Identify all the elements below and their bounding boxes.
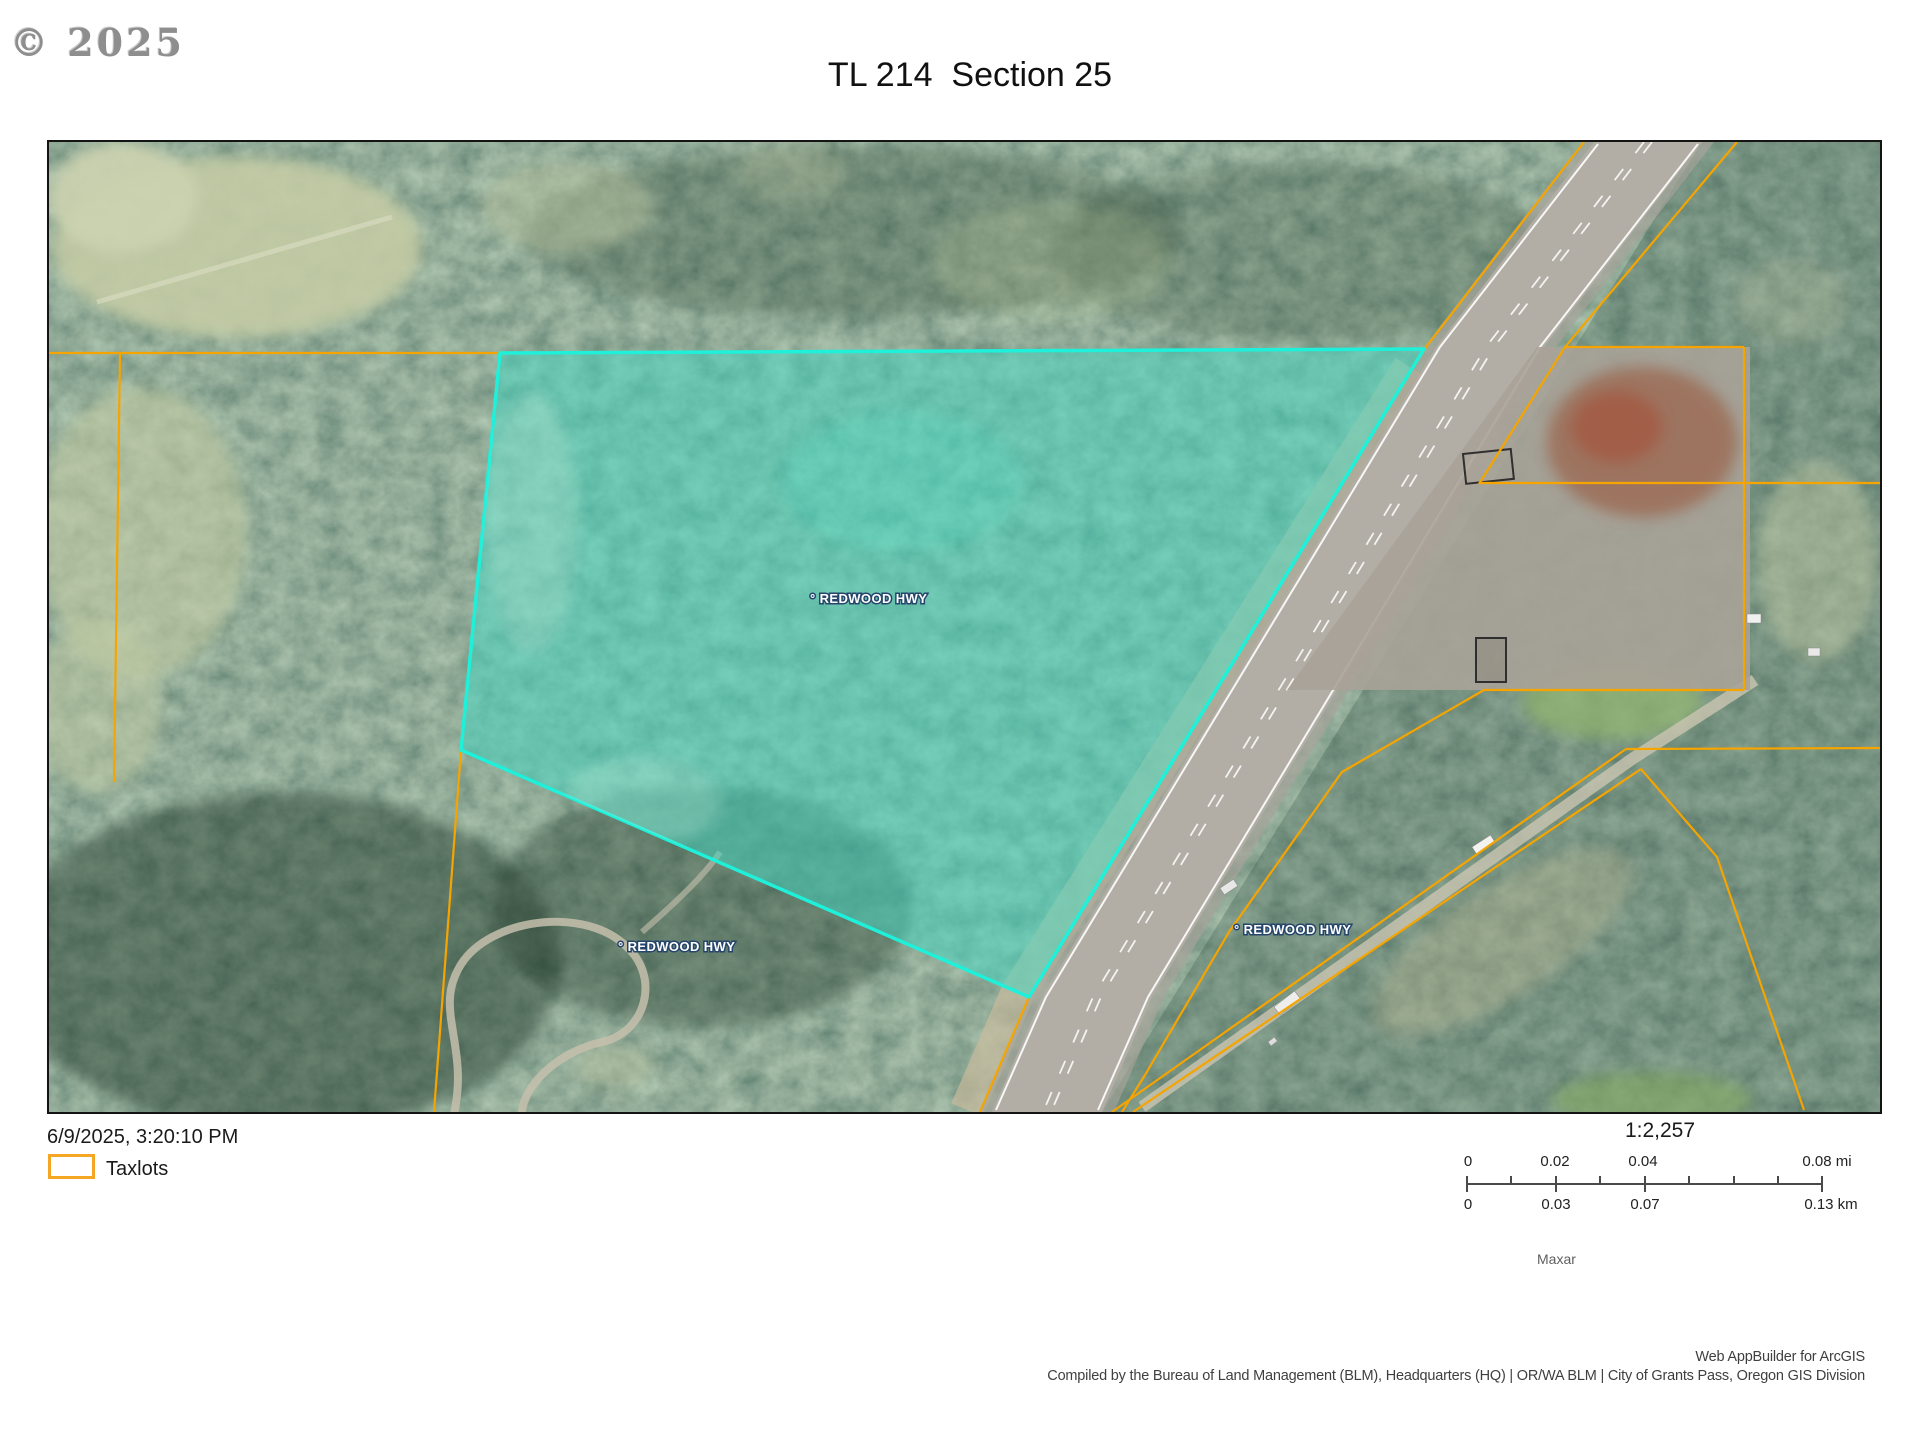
scalebar-tick bbox=[1644, 1176, 1646, 1184]
scalebar-tick bbox=[1466, 1176, 1468, 1184]
scalebar-km-1: 0.03 bbox=[1541, 1196, 1570, 1213]
building-foundation-2 bbox=[1476, 638, 1506, 682]
scalebar-km-2: 0.07 bbox=[1630, 1196, 1659, 1213]
scalebar-tick bbox=[1555, 1176, 1557, 1184]
scalebar-tick bbox=[1599, 1176, 1601, 1184]
legend-taxlots-label: Taxlots bbox=[106, 1158, 168, 1181]
scalebar-tick bbox=[1777, 1176, 1779, 1184]
scalebar-mi-1: 0.02 bbox=[1540, 1153, 1569, 1170]
scalebar-tick bbox=[1644, 1184, 1646, 1192]
scalebar-tick bbox=[1733, 1176, 1735, 1184]
map-label-redwood-hwy-3: ° REDWOOD HWY bbox=[1234, 922, 1351, 937]
scalebar-tick bbox=[1555, 1184, 1557, 1192]
legend-taxlots-swatch bbox=[48, 1154, 95, 1179]
scalebar-mi-3: 0.08 mi bbox=[1802, 1153, 1851, 1170]
scalebar-tick bbox=[1688, 1176, 1690, 1184]
scalebar-mi-0: 0 bbox=[1464, 1153, 1472, 1170]
attribution-line2: Compiled by the Bureau of Land Managemen… bbox=[1047, 1367, 1865, 1386]
aerial-imagery: ° REDWOOD HWY ° REDWOOD HWY ° REDWOOD HW… bbox=[49, 142, 1880, 1112]
map-label-redwood-hwy-1: ° REDWOOD HWY bbox=[810, 591, 927, 606]
scalebar-tick bbox=[1821, 1184, 1823, 1192]
map-canvas[interactable]: ° REDWOOD HWY ° REDWOOD HWY ° REDWOOD HW… bbox=[47, 140, 1882, 1114]
scalebar-km-3: 0.13 km bbox=[1804, 1196, 1857, 1213]
scalebar-tick bbox=[1466, 1184, 1468, 1192]
page-title: TL 214 Section 25 bbox=[828, 56, 1112, 95]
copyright-watermark: © 2025 bbox=[10, 20, 185, 65]
scalebar-mi-2: 0.04 bbox=[1628, 1153, 1657, 1170]
scalebar-km-0: 0 bbox=[1464, 1196, 1472, 1213]
scalebar-tick bbox=[1510, 1176, 1512, 1184]
map-label-redwood-hwy-2: ° REDWOOD HWY bbox=[618, 939, 735, 954]
scalebar-tick bbox=[1821, 1176, 1823, 1184]
footer-attribution: Web AppBuilder for ArcGIS Compiled by th… bbox=[1047, 1348, 1865, 1386]
attribution-line1: Web AppBuilder for ArcGIS bbox=[1047, 1348, 1865, 1367]
export-timestamp: 6/9/2025, 3:20:10 PM bbox=[47, 1126, 238, 1149]
scale-ratio: 1:2,257 bbox=[1625, 1119, 1695, 1143]
imagery-attribution: Maxar bbox=[1537, 1251, 1576, 1267]
